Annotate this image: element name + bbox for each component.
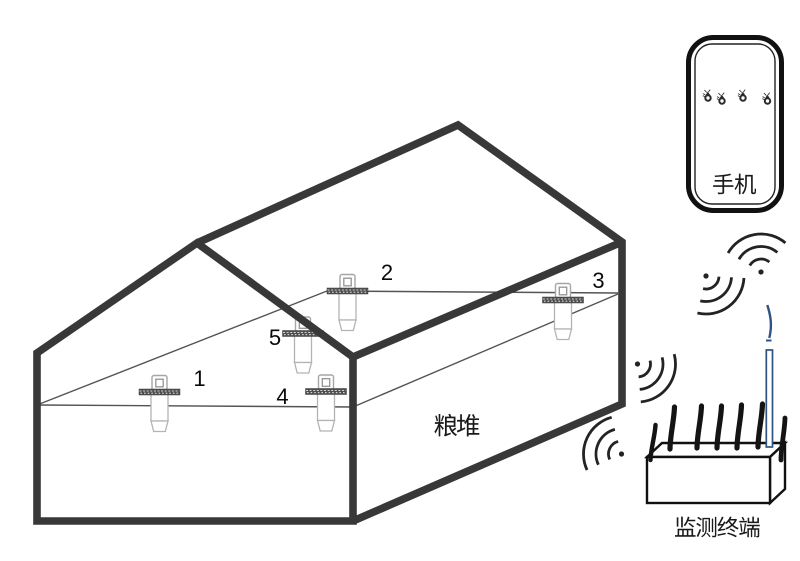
- svg-text:5: 5: [269, 325, 281, 350]
- svg-text:3: 3: [592, 268, 604, 293]
- svg-text:2: 2: [381, 260, 393, 285]
- svg-text:1: 1: [193, 366, 205, 391]
- svg-text:4: 4: [276, 384, 288, 409]
